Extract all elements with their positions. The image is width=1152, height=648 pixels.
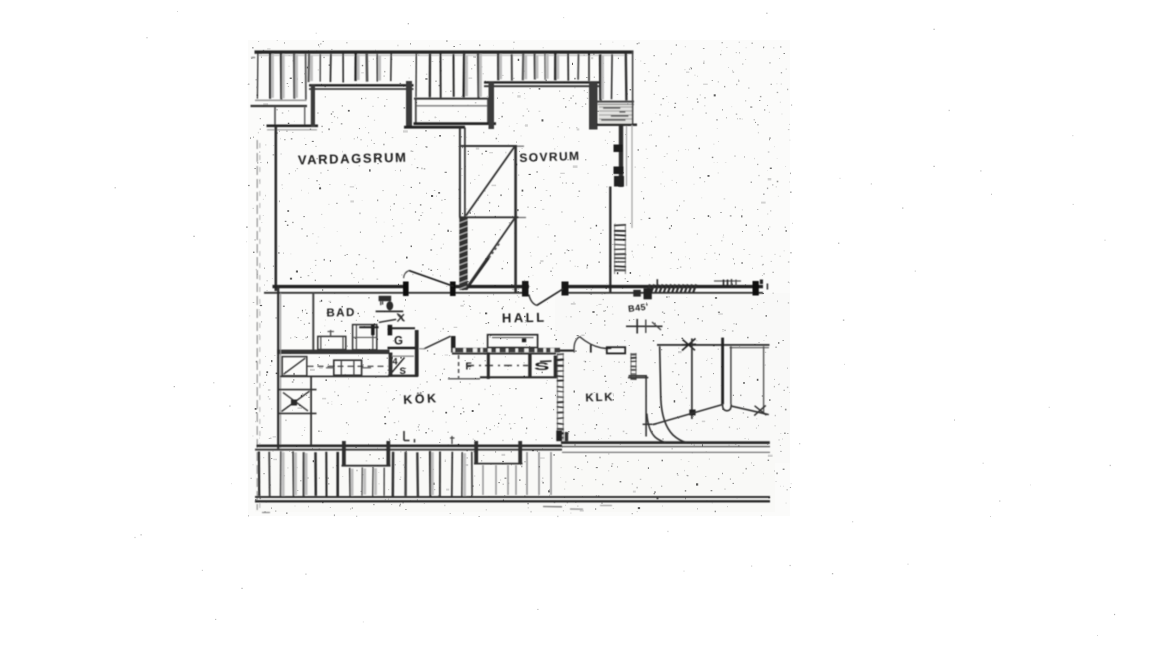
svg-text:F: F [466,362,472,373]
svg-text:KLK: KLK [585,391,614,404]
svg-text:KÖK: KÖK [403,390,439,407]
svg-text:HALL: HALL [502,310,547,326]
svg-text:4: 4 [393,357,398,367]
svg-text:SOVRUM: SOVRUM [519,149,581,165]
svg-text:BAD: BAD [326,307,356,320]
svg-text:VARDAGSRUM: VARDAGSRUM [298,150,408,168]
svg-text:G: G [394,336,403,348]
